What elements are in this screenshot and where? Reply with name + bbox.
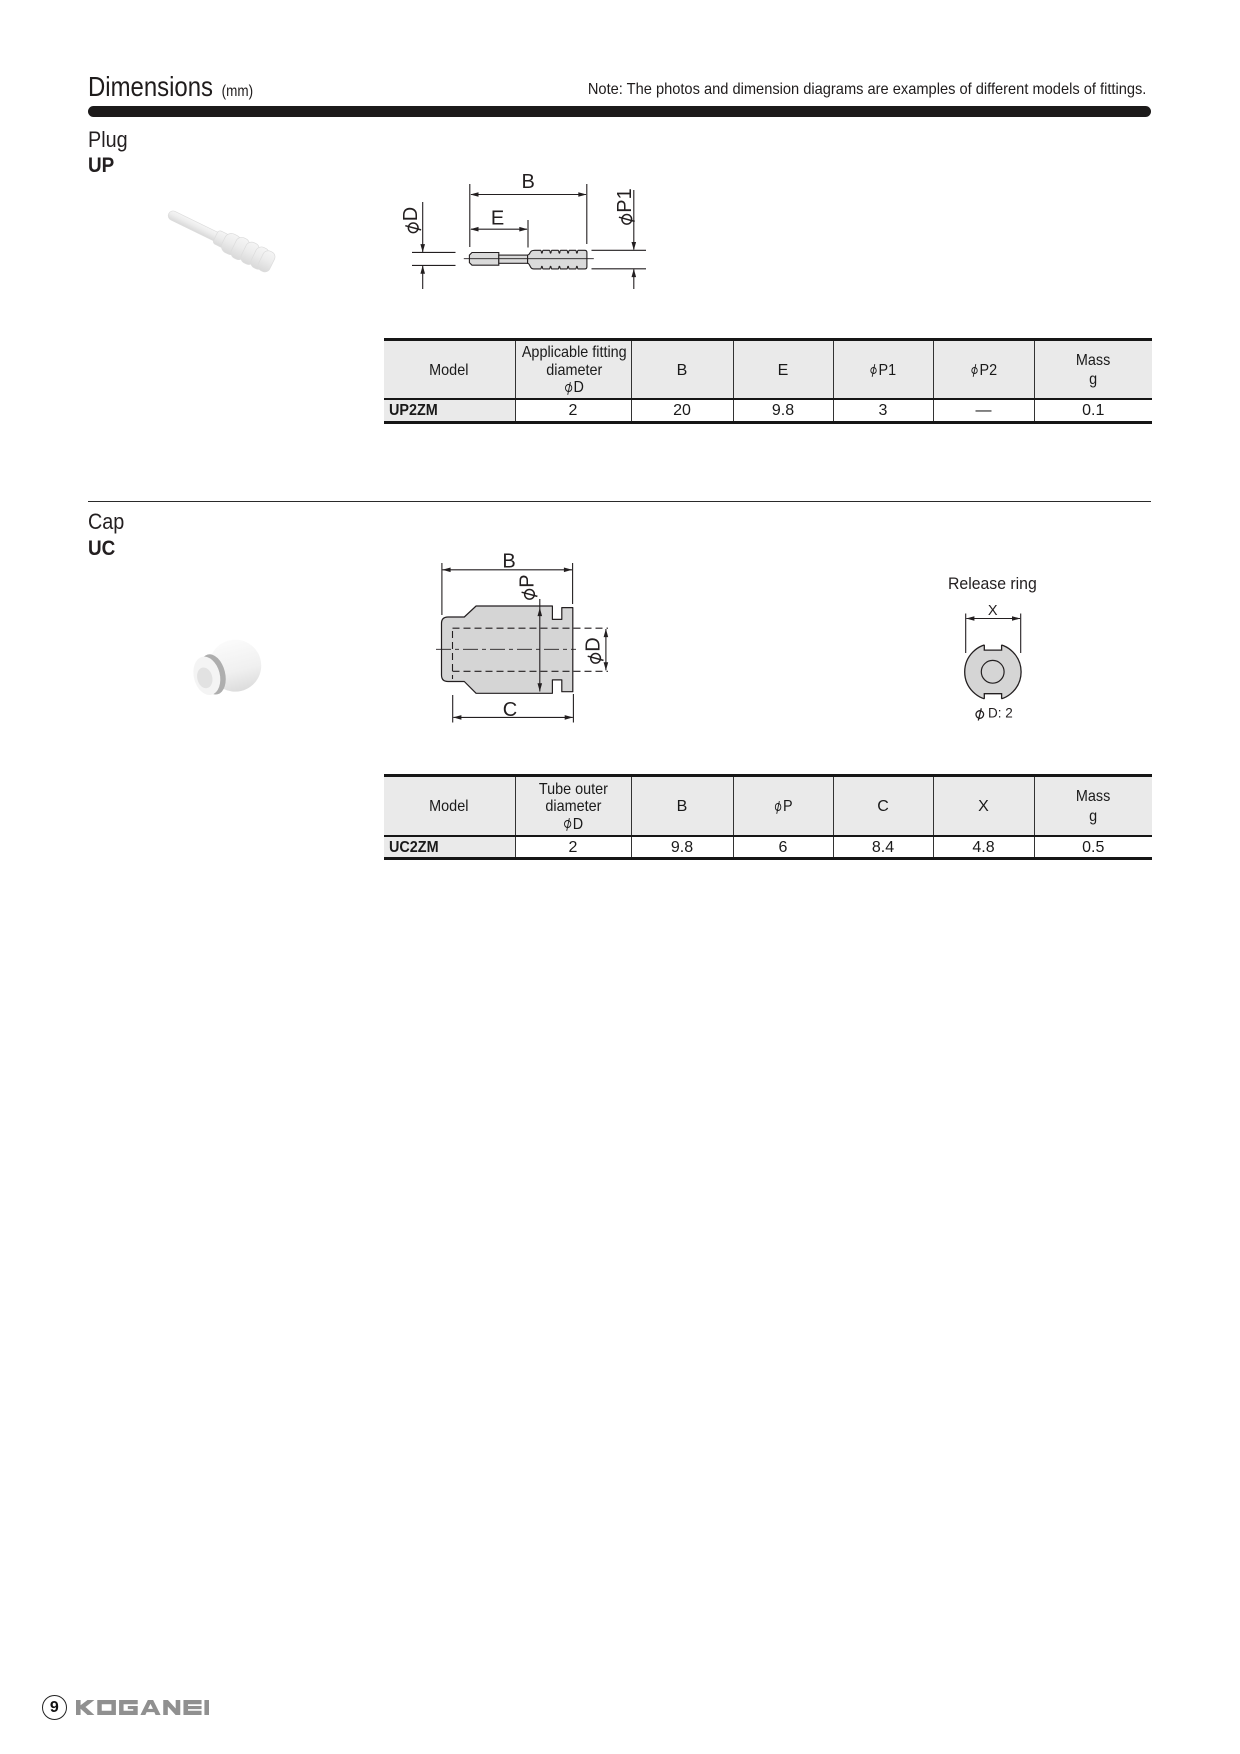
svg-text:E: E xyxy=(491,208,504,230)
svg-text:D: D xyxy=(400,207,422,221)
svg-text:X: X xyxy=(988,603,998,619)
svg-text:C: C xyxy=(503,699,517,721)
svg-text:D: D xyxy=(583,637,605,651)
svg-text:B: B xyxy=(522,171,535,193)
svg-text:P1: P1 xyxy=(614,188,636,212)
svg-text:D: 2: D: 2 xyxy=(988,706,1013,721)
svg-text:P: P xyxy=(517,574,539,587)
svg-text:B: B xyxy=(502,550,515,572)
